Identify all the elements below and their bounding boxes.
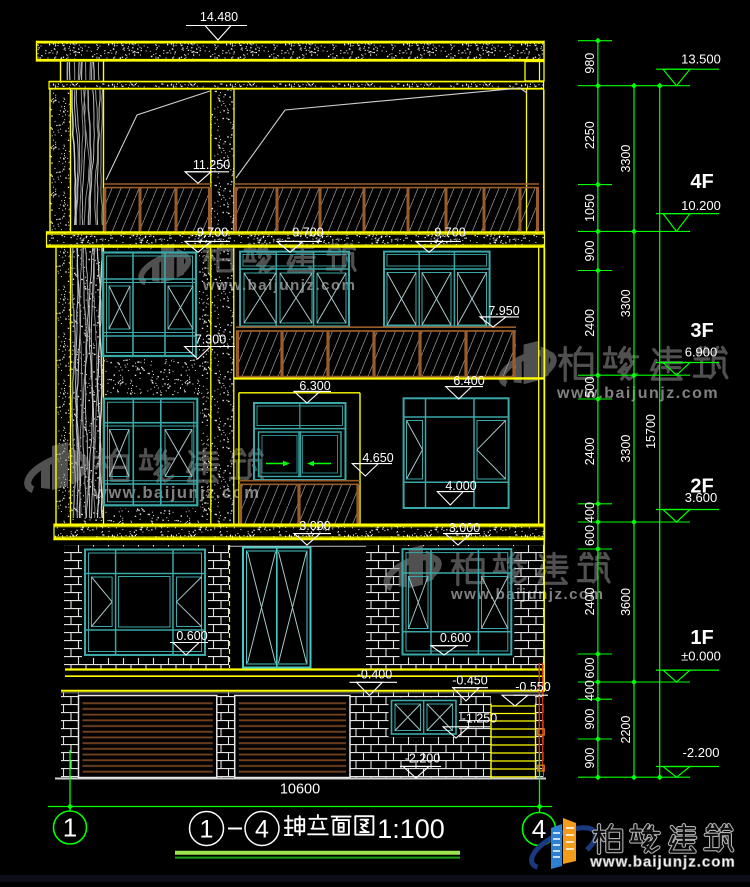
svg-text:900: 900 — [583, 748, 597, 769]
svg-text:900: 900 — [583, 709, 597, 730]
svg-text:1: 1 — [63, 813, 77, 843]
svg-text:10.200: 10.200 — [681, 198, 721, 213]
svg-text:1F: 1F — [690, 627, 713, 649]
svg-text:2200: 2200 — [619, 716, 633, 744]
svg-text:-0.550: -0.550 — [515, 680, 550, 694]
svg-text:10600: 10600 — [280, 782, 320, 798]
svg-text:-0.400: -0.400 — [357, 667, 392, 681]
svg-text:600: 600 — [583, 658, 597, 679]
svg-text:3300: 3300 — [619, 289, 633, 317]
svg-text:7.950: 7.950 — [488, 304, 519, 318]
svg-text:400: 400 — [583, 680, 597, 701]
svg-text:980: 980 — [583, 53, 597, 74]
svg-text:9.700: 9.700 — [292, 225, 323, 239]
svg-text:6.900: 6.900 — [685, 345, 718, 360]
svg-text:www.baijunjz.com: www.baijunjz.com — [589, 854, 735, 871]
svg-text:15700: 15700 — [644, 414, 658, 449]
svg-text:2400: 2400 — [583, 437, 597, 465]
svg-text:3.000: 3.000 — [299, 519, 330, 533]
svg-text:9.700: 9.700 — [197, 225, 228, 239]
svg-text:400: 400 — [583, 502, 597, 523]
svg-text:3F: 3F — [690, 320, 713, 342]
svg-text:13.500: 13.500 — [681, 52, 721, 67]
svg-text:600: 600 — [583, 525, 597, 546]
svg-text:1: 1 — [200, 816, 214, 844]
svg-text:0.600: 0.600 — [176, 629, 207, 643]
svg-text:3.000: 3.000 — [449, 521, 480, 535]
svg-text:4.000: 4.000 — [445, 479, 476, 493]
svg-text:1:100: 1:100 — [377, 814, 445, 844]
svg-text:3300: 3300 — [619, 145, 633, 173]
svg-text:www.baijunjz.com: www.baijunjz.com — [450, 586, 604, 603]
svg-text:2400: 2400 — [583, 588, 597, 616]
svg-text:500: 500 — [583, 377, 597, 398]
svg-text:2250: 2250 — [583, 121, 597, 149]
svg-text:6.400: 6.400 — [453, 374, 484, 388]
svg-text:3300: 3300 — [619, 435, 633, 463]
svg-text:2400: 2400 — [583, 309, 597, 337]
svg-text:-2.200: -2.200 — [405, 751, 440, 765]
svg-text:9.700: 9.700 — [434, 225, 465, 239]
svg-text:www.baijunjz.com: www.baijunjz.com — [93, 484, 260, 502]
svg-text:7.300: 7.300 — [195, 333, 226, 347]
svg-text:4.650: 4.650 — [362, 451, 393, 465]
svg-text:±0.000: ±0.000 — [681, 649, 721, 664]
svg-text:-0.450: -0.450 — [452, 673, 487, 687]
svg-text:-2.200: -2.200 — [683, 745, 720, 760]
svg-text:14.480: 14.480 — [200, 10, 238, 24]
svg-text:11.250: 11.250 — [193, 158, 230, 172]
svg-text:900: 900 — [583, 241, 597, 262]
svg-text:1050: 1050 — [583, 194, 597, 222]
svg-text:4: 4 — [255, 816, 269, 844]
svg-text:4F: 4F — [690, 171, 713, 193]
svg-text:4: 4 — [532, 814, 546, 844]
svg-text:0.600: 0.600 — [440, 631, 471, 645]
svg-text:-1.250: -1.250 — [462, 711, 497, 725]
svg-text:www.baijunjz.com: www.baijunjz.com — [202, 277, 356, 294]
svg-text:3.600: 3.600 — [685, 490, 718, 505]
svg-text:3600: 3600 — [619, 588, 633, 616]
svg-text:6.300: 6.300 — [299, 379, 330, 393]
